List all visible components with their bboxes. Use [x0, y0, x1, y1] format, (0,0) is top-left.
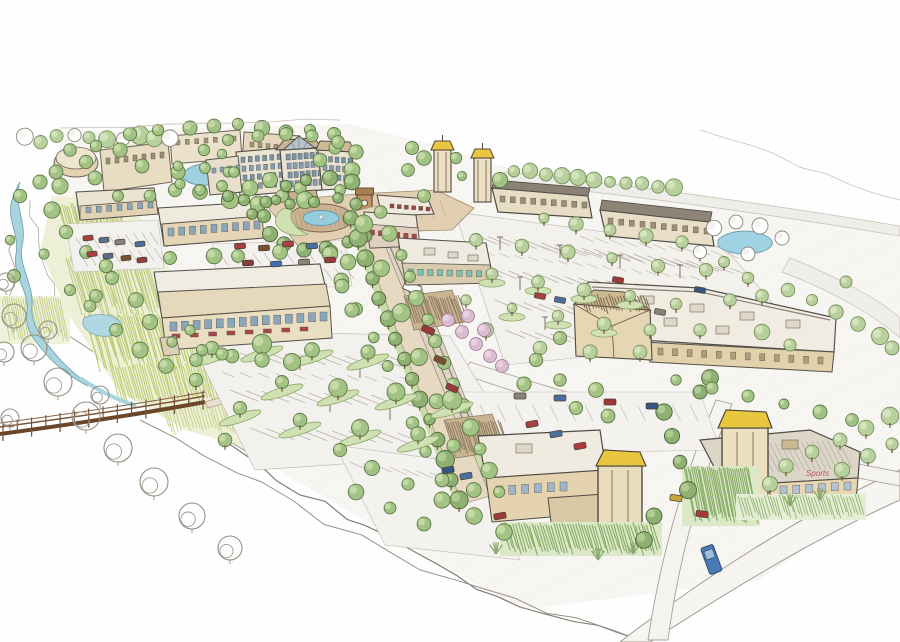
svg-text:Sports: Sports	[806, 469, 829, 478]
